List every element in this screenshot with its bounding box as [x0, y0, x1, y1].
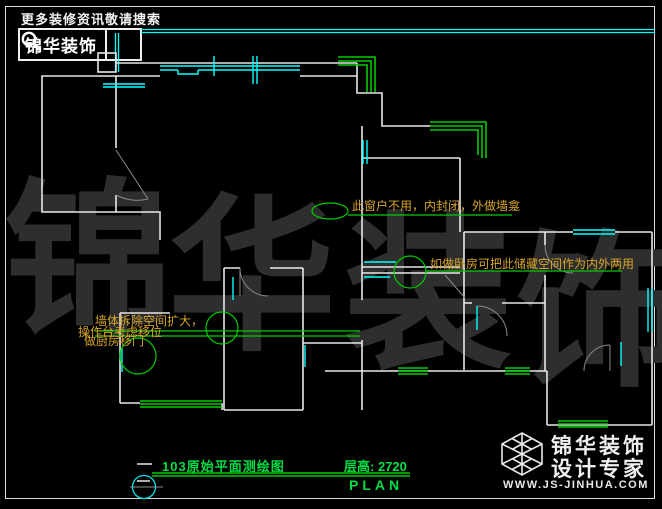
plan-label: PLAN: [349, 477, 403, 493]
annotation-storage: 如做卧房可把此储藏空间作为内外两用: [430, 255, 634, 272]
cad-floorplan-screenshot: 锦 华 装 饰: [0, 0, 662, 509]
annotation-window: 此窗户不用，内封闭，外做墙龛: [352, 197, 520, 214]
annotation-leaders: [95, 203, 622, 374]
floor-height-label: 层高: 2720: [344, 456, 407, 475]
annotation-kitchen-line3: 做厨房移门: [84, 332, 144, 349]
drawing-title: 103原始平面测绘图: [162, 456, 285, 475]
footer-website: WWW.JS-JINHUA.COM: [503, 479, 649, 491]
